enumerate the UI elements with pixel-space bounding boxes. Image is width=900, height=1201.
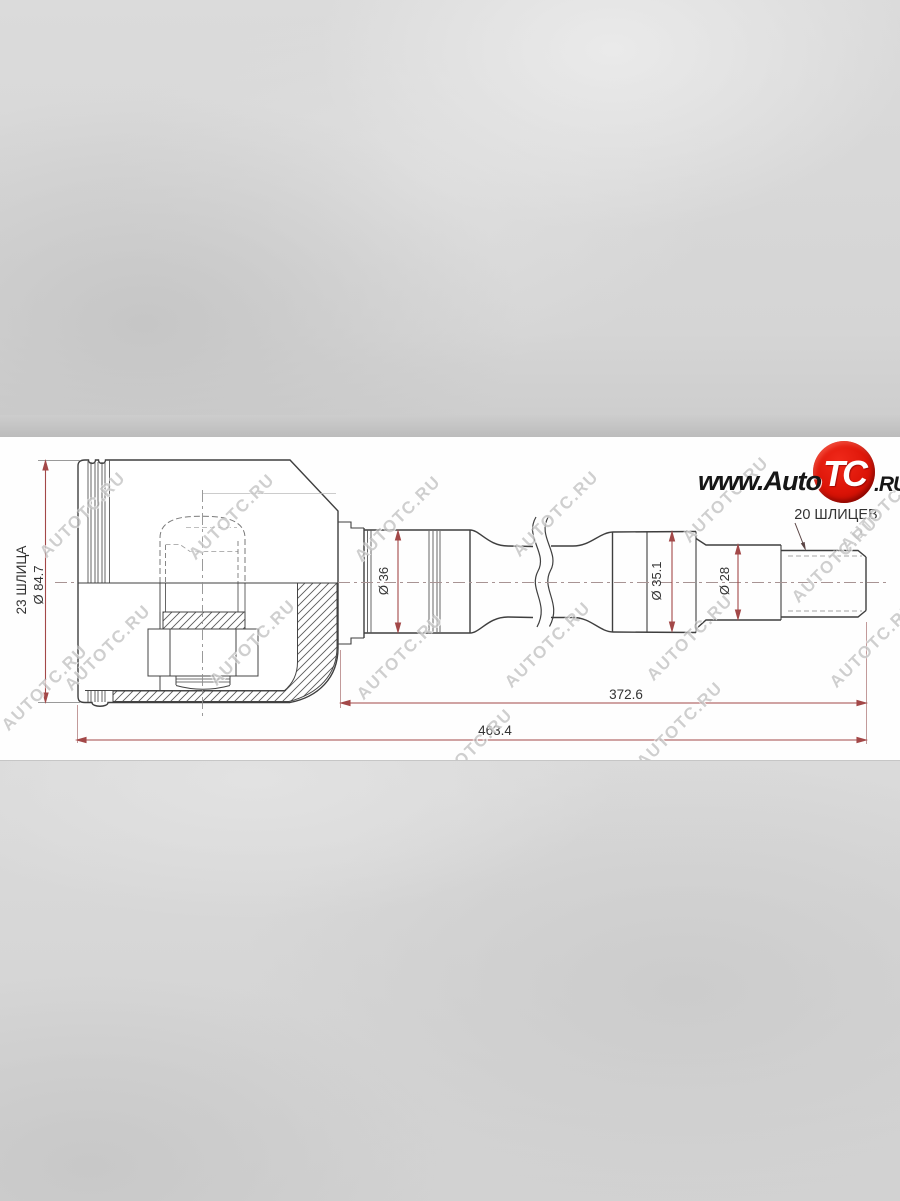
autotc-logo-tc: TC [813, 449, 875, 499]
label-splines-right: 20 ШЛИЦЕВ [794, 507, 877, 523]
label-dia-housing: Ø 84.7 [31, 565, 46, 604]
blurred-background-bottom [0, 760, 900, 1201]
page: { "watermark": { "text": "AUTOTC.RU" }, … [0, 0, 900, 1200]
blurred-background-top [0, 0, 900, 415]
label-dia-36: Ø 36 [376, 567, 391, 595]
autotc-logo: TC www.Auto .RU [698, 441, 900, 505]
dim-length-inner [341, 701, 866, 706]
autotc-logo-www: www.Auto [698, 466, 821, 497]
label-length-inner: 372.6 [609, 687, 643, 702]
background-shadow-band [0, 415, 900, 437]
spline-minor-diameter-lines [788, 556, 862, 611]
label-dia-35-1: Ø 35.1 [649, 561, 664, 600]
autotc-logo-ru: .RU [874, 473, 900, 497]
dim-dia-28 [736, 545, 741, 619]
label-splines-left: 23 ШЛИЦА [14, 546, 29, 615]
dim-dia-35-1 [670, 532, 675, 631]
dim-dia-36 [396, 531, 401, 632]
spline-leader [795, 523, 806, 551]
break-lines [533, 517, 554, 628]
dim-length-total [77, 738, 866, 743]
shaft-collar [338, 522, 364, 644]
label-length-total: 463.4 [478, 723, 512, 738]
label-dia-28: Ø 28 [717, 567, 732, 595]
shaft [364, 517, 866, 639]
